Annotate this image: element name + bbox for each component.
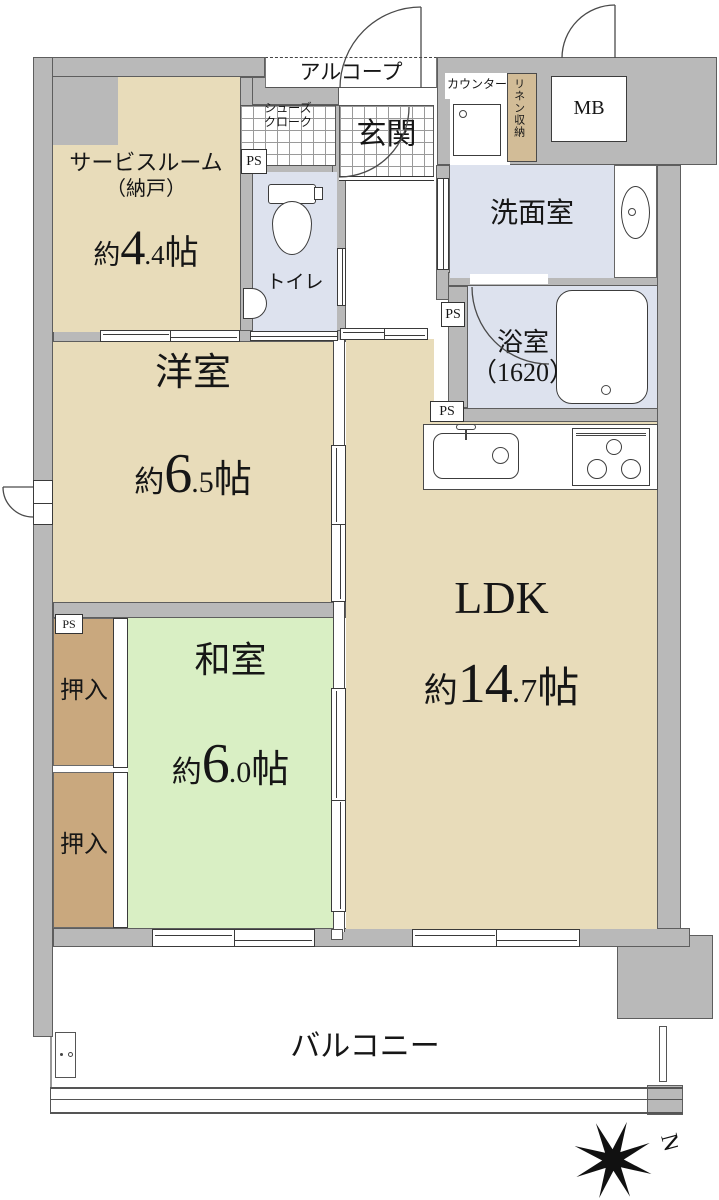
balcony-faucet-dot	[60, 1053, 63, 1056]
balcony-faucet-dot2	[68, 1052, 73, 1057]
room-ldk-strip	[346, 339, 434, 423]
vanity-drain	[628, 208, 636, 216]
ps-2-label: PS	[445, 307, 461, 323]
alcove-label: アルコープ	[265, 60, 437, 84]
window-western-left	[33, 480, 53, 525]
service-size-dec: .4	[144, 240, 164, 271]
closet-lower-label: 押入	[53, 832, 115, 860]
western-approx: 約	[134, 457, 164, 501]
counter-sink	[453, 104, 501, 156]
bathroom-name: 浴室	[497, 328, 549, 357]
door-washroom	[437, 178, 449, 270]
western-room-name: 洋室	[53, 352, 333, 396]
floor-plan: アルコープ シューズ クローク 玄関 カウンター リネン収納 MB PS PS …	[0, 0, 719, 1200]
window-japanese-balcony	[152, 929, 315, 947]
wall-right-lower-block	[617, 935, 713, 1019]
western-size-big: 6	[164, 442, 191, 506]
ldk-name: LDK	[346, 572, 657, 625]
shoes-closet-line2: クローク	[264, 115, 312, 129]
service-size-big: 4	[120, 218, 144, 276]
toilet-label: トイレ	[253, 272, 337, 294]
fusuma-closet-doors	[113, 618, 128, 928]
stove-burner-2	[621, 459, 641, 479]
stove-grill	[576, 433, 646, 436]
japanese-size-unit: 帖	[251, 738, 289, 793]
western-size-dec: .5	[191, 466, 214, 500]
ps-box-2: PS	[441, 302, 465, 327]
japanese-approx: 約	[172, 747, 202, 791]
ps-box-4: PS	[55, 614, 83, 634]
japanese-room-name: 和室	[128, 640, 333, 681]
genkan-step	[339, 176, 434, 181]
ldk-size-big: 14	[458, 652, 512, 716]
western-window-arc	[3, 487, 33, 517]
window-ldk-balcony	[412, 929, 580, 947]
compass-north-label: N	[655, 1131, 678, 1154]
balcony-left-edge	[50, 1037, 52, 1087]
service-size-unit: 帖	[165, 225, 199, 274]
wall-western-bottom	[53, 602, 346, 618]
western-room-size: 約6.5帖	[53, 442, 333, 506]
mb-door-arc	[562, 5, 615, 58]
stove	[572, 428, 650, 486]
closet-upper-label: 押入	[53, 678, 115, 706]
service-approx: 約	[93, 233, 120, 272]
compass: N	[558, 1100, 678, 1200]
stove-burner-1	[587, 459, 607, 479]
ldk-size-dec: .7	[512, 673, 538, 711]
wall-balcony-top	[53, 928, 690, 947]
wall-top	[33, 57, 265, 77]
wall-bathroom-bottom	[448, 408, 658, 422]
service-room-name2: （納戸）	[106, 178, 186, 200]
counter-label: カウンター	[444, 78, 510, 92]
balcony-divider-panel	[659, 1026, 667, 1082]
ps-3-label: PS	[439, 404, 455, 420]
door-toilet	[337, 248, 346, 306]
ps-1-label: PS	[246, 154, 262, 170]
service-room-name: サービスルーム	[69, 150, 222, 175]
door-western-ldk	[331, 445, 346, 602]
ldk-size-unit: 帖	[537, 654, 579, 715]
kitchen-sink-drain	[492, 447, 509, 464]
kitchen-faucet-head	[456, 424, 476, 430]
ldk-approx: 約	[424, 663, 458, 712]
ps-box-3: PS	[430, 401, 464, 422]
genkan-label: 玄関	[339, 118, 434, 153]
compass-star	[571, 1118, 656, 1200]
wall-right	[657, 165, 681, 935]
stove-burner-3	[606, 439, 622, 455]
balcony-faucet	[55, 1032, 76, 1078]
window-post	[331, 929, 343, 940]
balcony-label: バルコニー	[200, 1030, 530, 1065]
shoes-closet-label: シューズ クローク	[246, 102, 330, 130]
ps-4-label: PS	[62, 617, 75, 632]
fusuma-gap	[113, 767, 128, 773]
wall-left	[33, 57, 53, 1037]
linen-storage-label: リネン収納	[512, 78, 525, 138]
ps-box-1: PS	[241, 149, 267, 174]
counter-sink-drain	[459, 110, 467, 118]
door-service-western	[100, 330, 240, 342]
japanese-size-big: 6	[202, 732, 229, 796]
bar-below-toilet	[250, 331, 338, 341]
meter-box-label: MB	[551, 97, 627, 120]
washroom-label: 洗面室	[450, 198, 614, 230]
japanese-room-size: 約6.0帖	[128, 732, 333, 796]
ldk-size: 約14.7帖	[346, 652, 657, 716]
bathroom-size: （1620）	[471, 358, 575, 387]
bathtub-drain	[601, 385, 611, 395]
bathroom-label: 浴室 （1620）	[458, 328, 588, 388]
western-size-unit: 帖	[214, 448, 252, 503]
toilet-handle	[314, 187, 323, 200]
shoes-closet-line1: シューズ	[264, 101, 311, 115]
door-corridor-ldk	[340, 328, 428, 340]
fusuma-japanese-ldk	[331, 688, 346, 912]
service-room-size: 約4.4帖	[48, 218, 244, 276]
japanese-size-dec: .0	[229, 756, 252, 790]
room-service-upper	[118, 77, 240, 332]
service-room-label: サービスルーム （納戸）	[48, 150, 244, 201]
